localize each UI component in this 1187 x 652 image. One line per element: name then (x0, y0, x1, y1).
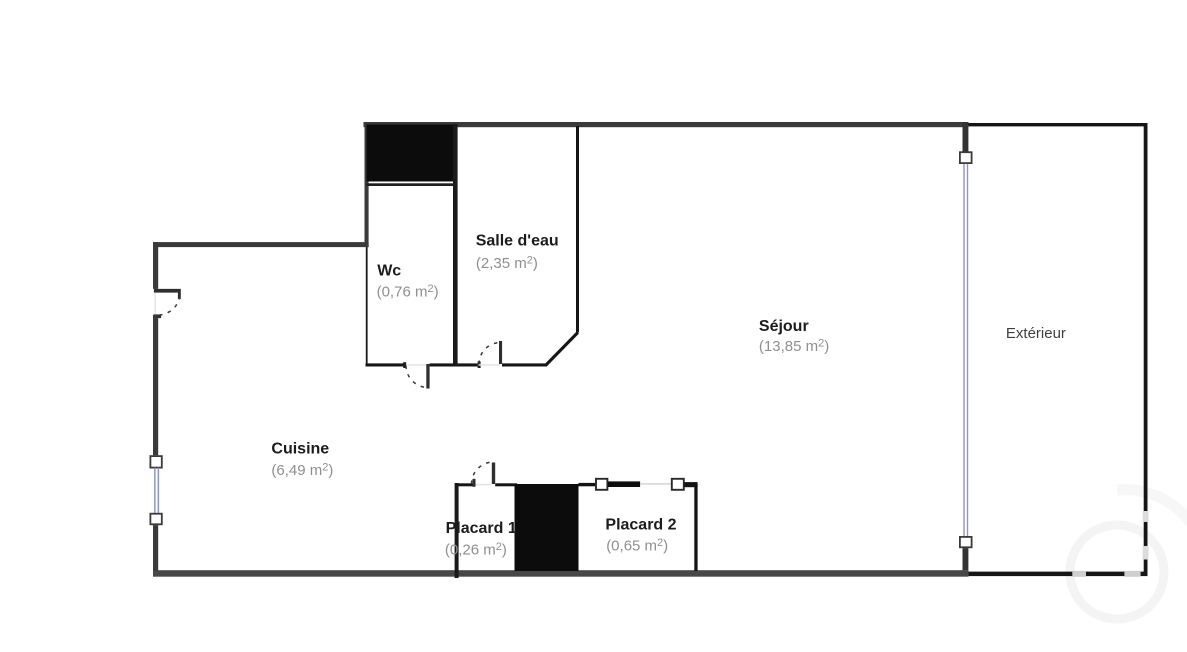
svg-text:Placard 2: Placard 2 (605, 516, 676, 533)
svg-text:Placard 1: Placard 1 (446, 520, 517, 537)
svg-text:Séjour: Séjour (759, 318, 809, 335)
svg-text:Extérieur: Extérieur (1006, 325, 1066, 342)
svg-text:Cuisine: Cuisine (271, 440, 329, 457)
svg-text:Salle d'eau: Salle d'eau (476, 232, 559, 249)
svg-text:Wc: Wc (377, 263, 401, 280)
